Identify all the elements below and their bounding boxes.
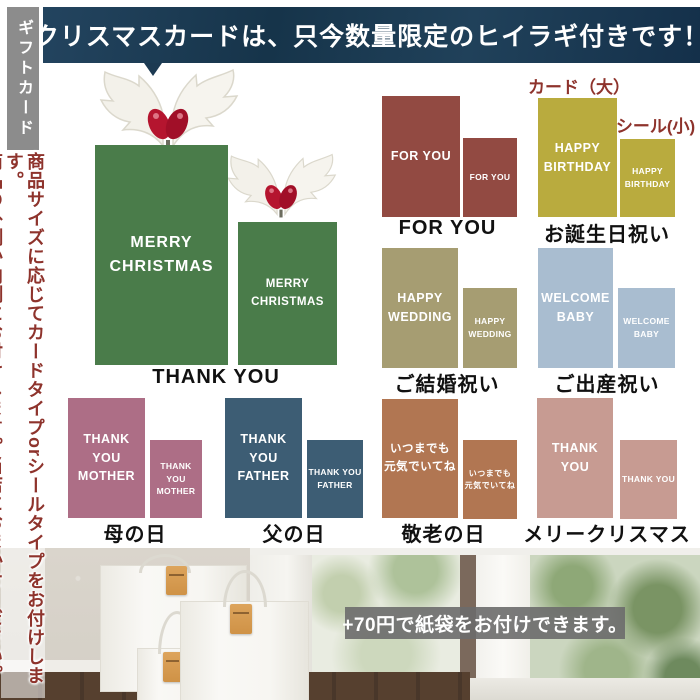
sample-card-small: FOR YOU (463, 138, 517, 217)
card-large-text: FOR YOU (391, 147, 451, 166)
sample-card-small: HAPPY BIRTHDAY (620, 139, 675, 217)
sample-card-large: THANK YOU (537, 398, 613, 518)
group-caption: THANK YOU (95, 366, 337, 389)
photo-window-sill (450, 678, 700, 700)
paper-bag-note-text: +70円で紙袋をお付けできます。 (342, 610, 627, 637)
sample-card-large: WELCOME BABY (538, 248, 613, 368)
card-large-text: WELCOME BABY (541, 289, 610, 327)
card-small-text: WELCOME BABY (623, 315, 669, 341)
card-large-text: MERRY CHRISTMAS (109, 231, 213, 279)
card-small-text: HAPPY WEDDING (468, 315, 511, 341)
card-small-text: いつまでも 元気でいてね (465, 468, 516, 492)
bag-tag (166, 566, 187, 595)
card-large-text: THANK YOU (537, 439, 613, 477)
bag-tag (230, 604, 252, 634)
card-small-text: THANK YOU (622, 473, 675, 486)
card-large-text: いつまでも 元気でいてね (384, 441, 456, 476)
card-small-text: THANK YOU MOTHER (150, 460, 202, 498)
sidebar-note-line-2: 商品の外側か内側にお付けします。当店におまかせください。 (0, 152, 3, 698)
sample-card-large: MERRY CHRISTMAS (95, 145, 228, 365)
top-banner: クリスマスカードは、只今数量限定のヒイラギ付きです！ (43, 7, 700, 63)
group-caption: 父の日 (225, 518, 363, 547)
banner-pointer-triangle (144, 63, 162, 76)
photo-window-top-frame (250, 548, 700, 555)
sample-card-large: THANK YOU FATHER (225, 398, 302, 518)
sample-card-large: THANK YOU MOTHER (68, 398, 145, 518)
card-small-text: FOR YOU (470, 171, 511, 184)
paper-bag-note-box: +70円で紙袋をお付けできます。 (345, 607, 625, 639)
card-small-text: THANK YOU FATHER (308, 466, 361, 492)
sample-card-small: HAPPY WEDDING (463, 288, 517, 368)
label-seal-small: シール(小) (613, 112, 698, 137)
sample-card-small: WELCOME BABY (618, 288, 675, 368)
sample-card-small: いつまでも 元気でいてね (463, 440, 517, 519)
paper-bag-medium (180, 601, 309, 700)
sidebar-tab-giftcard: ギフトカード (7, 7, 39, 150)
card-large-text: HAPPY WEDDING (388, 289, 452, 327)
card-small-text: HAPPY BIRTHDAY (625, 165, 671, 191)
group-caption: 敬老の日 (370, 518, 517, 547)
card-large-text: THANK YOU FATHER (225, 430, 302, 486)
group-caption: 母の日 (68, 518, 202, 547)
sidebar-note-line-1: 商品サイズに応じてカードタイプorシールタイプをお付けします。 (3, 152, 45, 698)
sample-card-large: HAPPY WEDDING (382, 248, 458, 368)
sample-card-small: THANK YOU FATHER (307, 440, 363, 518)
sample-card-large: HAPPY BIRTHDAY (538, 98, 617, 217)
sample-card-large: いつまでも 元気でいてね (382, 399, 458, 518)
paper-bag-photo: +70円で紙袋をお付けできます。 (0, 548, 700, 700)
group-caption: FOR YOU (375, 217, 520, 240)
holly-decoration-small (222, 146, 340, 226)
sample-card-large: FOR YOU (382, 96, 460, 217)
sample-card-small: THANK YOU MOTHER (150, 440, 202, 518)
group-caption: ご出産祝い (528, 368, 686, 397)
sidebar-vertical-notes: 商品サイズに応じてカードタイプorシールタイプをお付けします。 商品の外側か内側… (1, 152, 45, 698)
card-large-text: THANK YOU MOTHER (68, 430, 145, 486)
holly-decoration-large (93, 68, 243, 152)
group-caption: メリークリスマス (518, 518, 696, 547)
card-large-text: HAPPY BIRTHDAY (544, 139, 611, 177)
sidebar-tab-label: ギフトカード (11, 19, 35, 139)
group-caption: ご結婚祝い (372, 368, 522, 397)
group-caption: お誕生日祝い (528, 218, 686, 247)
sample-card-small: MERRY CHRISTMAS (238, 222, 337, 365)
banner-title: クリスマスカードは、只今数量限定のヒイラギ付きです！ (34, 17, 700, 53)
label-card-large: カード（大） (528, 73, 628, 98)
sample-card-small: THANK YOU (620, 440, 677, 519)
card-small-text: MERRY CHRISTMAS (251, 276, 324, 311)
